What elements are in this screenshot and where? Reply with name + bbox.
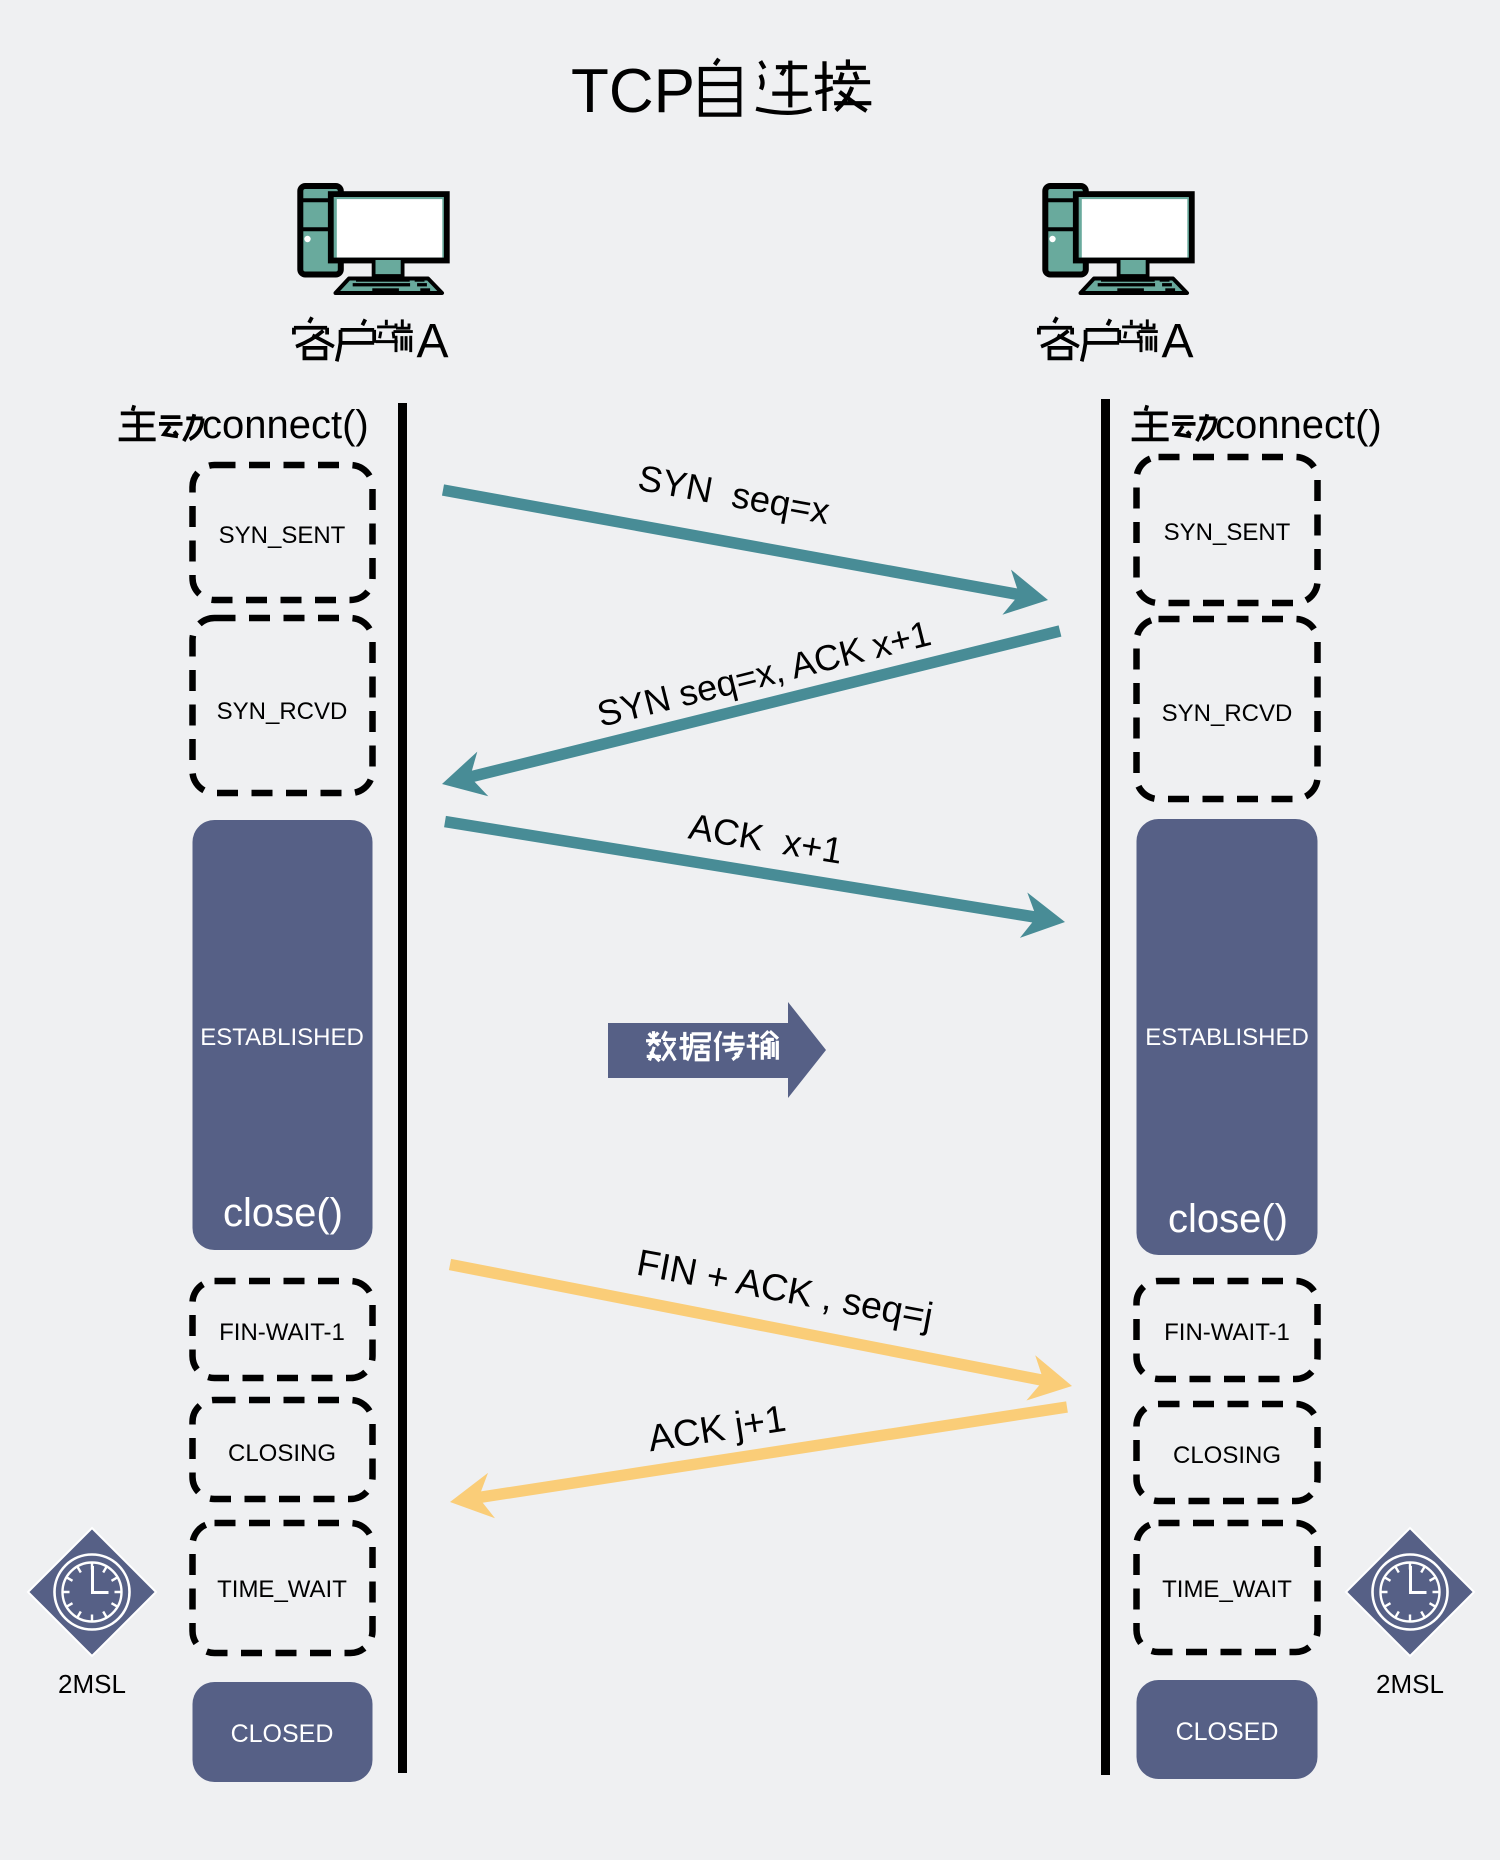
svg-text:A: A [417,315,449,368]
svg-text:CLOSED: CLOSED [231,1720,334,1748]
svg-text:FIN-WAIT-1: FIN-WAIT-1 [1164,1319,1290,1346]
svg-text:ESTABLISHED: ESTABLISHED [200,1024,364,1051]
svg-text:SYN_SENT: SYN_SENT [1164,519,1291,546]
svg-text:CLOSING: CLOSING [1173,1442,1281,1469]
svg-text:2MSL: 2MSL [1376,1669,1444,1699]
svg-text:CLOSING: CLOSING [228,1440,336,1467]
svg-text:ESTABLISHED: ESTABLISHED [1145,1024,1309,1051]
svg-text:TIME_WAIT: TIME_WAIT [217,1576,347,1603]
svg-text:TIME_WAIT: TIME_WAIT [1162,1576,1292,1603]
svg-text:connect(): connect() [1215,403,1382,447]
svg-text:2MSL: 2MSL [58,1669,126,1699]
svg-text:A: A [1162,315,1194,368]
svg-text:FIN-WAIT-1: FIN-WAIT-1 [219,1319,345,1346]
svg-text:CLOSED: CLOSED [1176,1718,1279,1746]
svg-text:SYN_SENT: SYN_SENT [219,522,346,549]
svg-text:close(): close() [1168,1197,1288,1241]
svg-text:close(): close() [223,1191,343,1235]
svg-text:connect(): connect() [202,403,369,447]
svg-text:SYN_RCVD: SYN_RCVD [217,698,348,725]
svg-text:TCP: TCP [571,57,695,126]
svg-text:SYN_RCVD: SYN_RCVD [1162,700,1293,727]
